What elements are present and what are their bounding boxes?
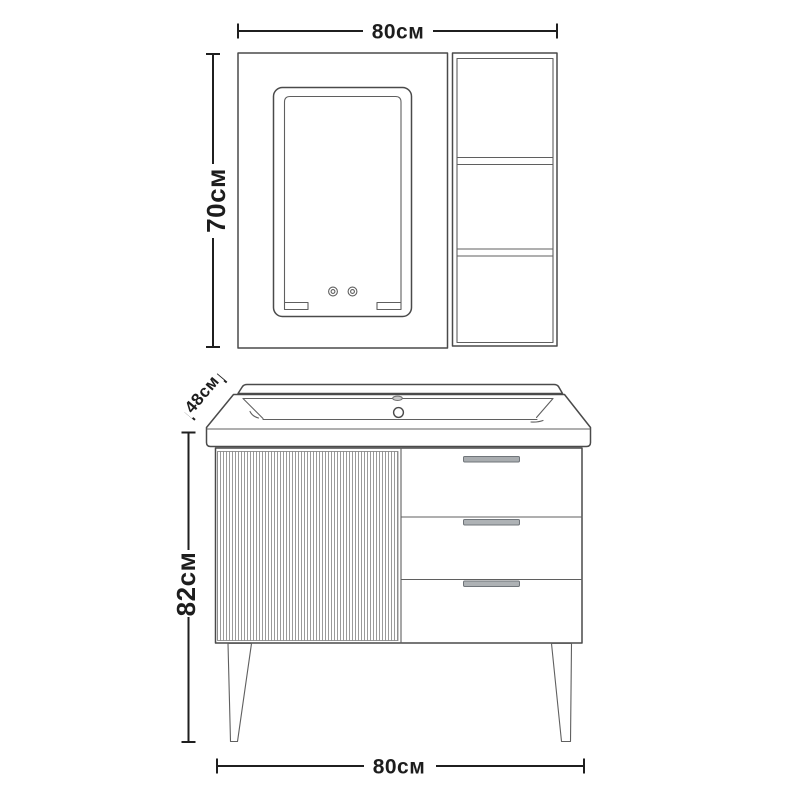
shelf-unit bbox=[453, 53, 558, 346]
vanity-unit bbox=[207, 385, 591, 742]
mirror-foot-right bbox=[377, 303, 401, 310]
product-dimension-drawing: 80см 70см 48см bbox=[0, 0, 800, 800]
backsplash bbox=[238, 385, 563, 394]
fluted-door bbox=[218, 452, 399, 641]
mirror-cabinet-panel bbox=[238, 53, 448, 348]
faucet-hole-icon bbox=[394, 408, 404, 418]
drawer-handle bbox=[464, 581, 520, 587]
shelf-board-bottom bbox=[457, 249, 553, 256]
dimension-cabinet-width: 80см bbox=[217, 753, 584, 779]
drawing-canvas: 80см 70см 48см bbox=[0, 0, 800, 800]
mirror-cabinet bbox=[238, 53, 557, 348]
cabinet-legs bbox=[228, 644, 572, 742]
basin-highlight-right bbox=[531, 421, 543, 423]
dimension-label: 80см bbox=[372, 21, 425, 44]
dimension-label: 70см bbox=[201, 168, 231, 233]
drawer-middle bbox=[401, 517, 582, 525]
dimension-mirror-height: 70см bbox=[200, 54, 231, 347]
led-mirror bbox=[274, 88, 412, 317]
shelf-unit-inner bbox=[457, 59, 553, 343]
dimension-label: 82см bbox=[171, 552, 201, 617]
counter-outline bbox=[207, 395, 591, 447]
mirror-touch-buttons-icon bbox=[329, 287, 357, 296]
dimension-mirror-width: 80см bbox=[238, 18, 557, 44]
mirror-frame-inner bbox=[285, 97, 402, 303]
overflow-hole-icon bbox=[393, 396, 403, 400]
basin-inner-right-slope bbox=[537, 399, 554, 418]
shelf-board-top bbox=[457, 158, 553, 165]
dimension-cabinet-height: 82см bbox=[170, 433, 204, 743]
drawer-bottom bbox=[401, 580, 582, 587]
leg-right bbox=[552, 644, 572, 742]
mirror-frame-outer bbox=[274, 88, 412, 317]
shelf-unit-outer bbox=[453, 53, 558, 346]
vanity-cabinet bbox=[216, 448, 583, 643]
drawer-handle bbox=[464, 520, 520, 526]
leg-left bbox=[228, 644, 252, 742]
drawer-top bbox=[464, 457, 520, 463]
ceramic-basin bbox=[207, 385, 591, 447]
dimension-label: 80см bbox=[373, 756, 426, 779]
mirror-foot-left bbox=[285, 303, 309, 310]
drawer-handle bbox=[464, 457, 520, 463]
